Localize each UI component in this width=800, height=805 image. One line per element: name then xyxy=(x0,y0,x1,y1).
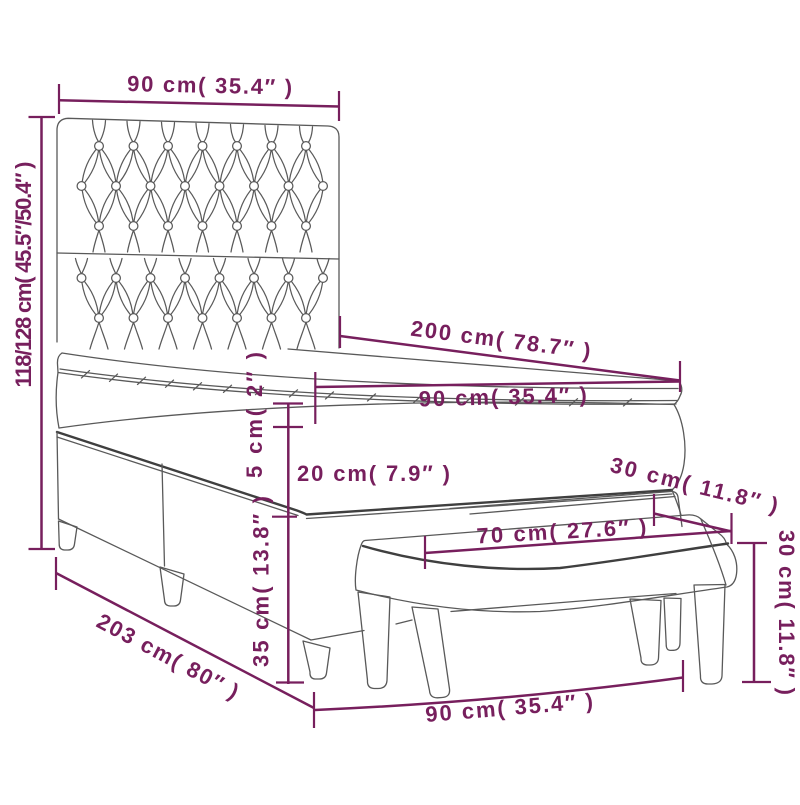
svg-text:90 cm( 35.4″ ): 90 cm( 35.4″ ) xyxy=(127,71,293,100)
svg-text:35 cm( 13.8″ ): 35 cm( 13.8″ ) xyxy=(249,496,274,667)
svg-text:90 cm( 35.4″ ): 90 cm( 35.4″ ) xyxy=(418,382,587,411)
svg-text:20 cm( 7.9″ ): 20 cm( 7.9″ ) xyxy=(297,461,450,486)
svg-text:118/128 cm( 45.5″/50.4″ ): 118/128 cm( 45.5″/50.4″ ) xyxy=(11,162,36,388)
svg-text:30 cm( 11.8″ ): 30 cm( 11.8″ ) xyxy=(774,530,799,695)
